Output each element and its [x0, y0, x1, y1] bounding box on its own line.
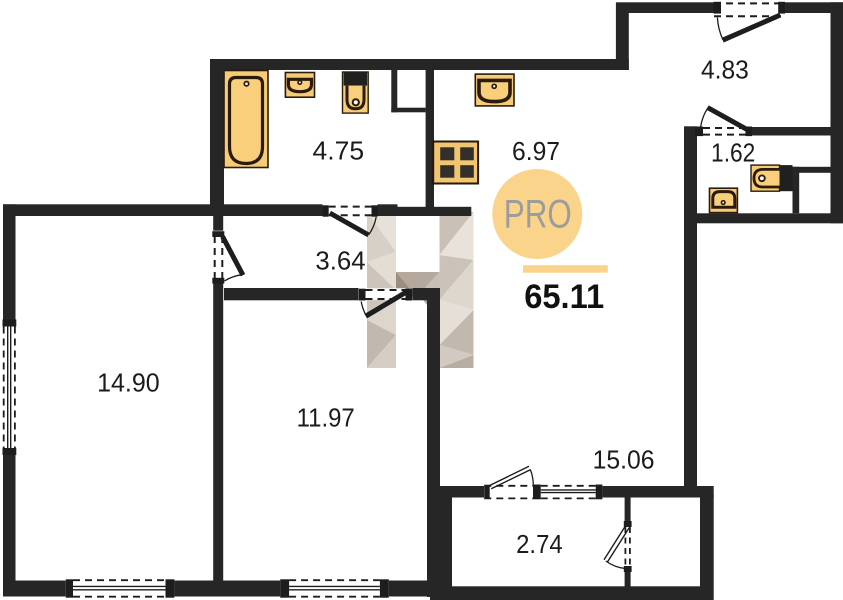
svg-text:4.83: 4.83: [701, 54, 749, 84]
svg-text:6.97: 6.97: [512, 136, 560, 166]
svg-text:1.62: 1.62: [711, 138, 755, 168]
svg-text:4.75: 4.75: [313, 136, 365, 166]
svg-text:2.74: 2.74: [516, 529, 563, 559]
svg-text:PRO: PRO: [504, 193, 572, 237]
svg-text:3.64: 3.64: [315, 246, 365, 276]
svg-text:11.97: 11.97: [297, 403, 355, 433]
svg-text:65.11: 65.11: [524, 278, 604, 316]
svg-text:14.90: 14.90: [97, 368, 160, 398]
svg-text:15.06: 15.06: [593, 445, 655, 475]
